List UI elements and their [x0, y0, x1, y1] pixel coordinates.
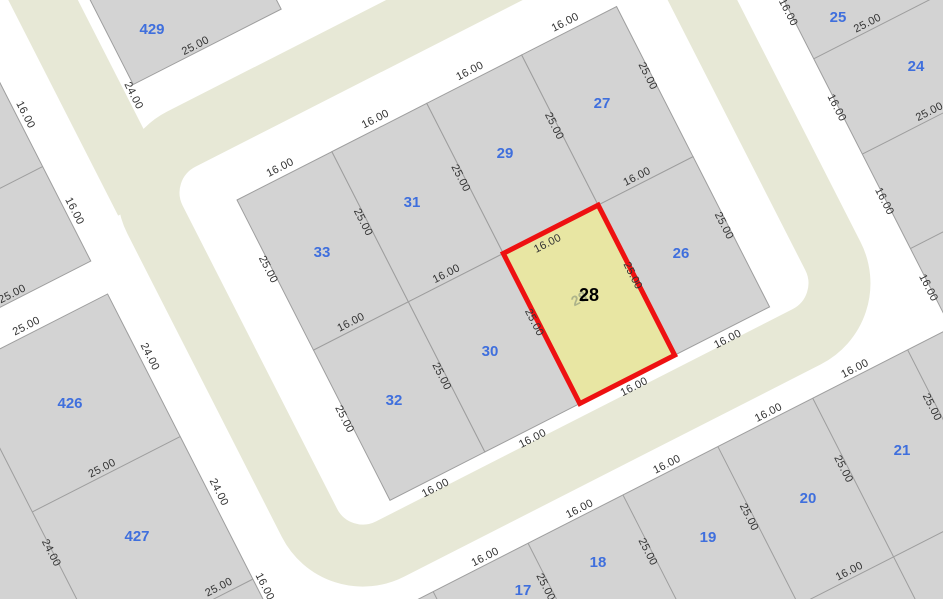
parcel-number-label: 24 [908, 58, 925, 75]
parcel-number-label: 21 [894, 442, 911, 459]
parcel-number-label: 429 [139, 21, 164, 38]
parcel-number-label: 33 [314, 244, 331, 261]
parcel-number-label: 20 [800, 490, 817, 507]
parcel-number-label: 30 [482, 343, 499, 360]
parcel-number-label: 27 [594, 95, 611, 112]
parcel-number-label: 31 [404, 194, 421, 211]
parcel-number-label: 427 [124, 528, 149, 545]
parcel-number-label: 32 [386, 392, 403, 409]
parcel-28-selected-number: 28 [579, 285, 599, 305]
parcel-number-label: 426 [57, 395, 82, 412]
parcel-number-label: 18 [590, 554, 607, 571]
parcel-number-label: 17 [515, 582, 532, 599]
parcel-number-label: 25 [830, 9, 847, 26]
map-canvas[interactable]: 16.0016.0016.0016.0016.0016.0016.0016.00… [0, 0, 943, 599]
map-viewport[interactable]: 16.0016.0016.0016.0016.0016.0016.0016.00… [0, 0, 943, 599]
parcel-number-label: 26 [673, 245, 690, 262]
parcel-number-label: 19 [700, 529, 717, 546]
parcel-number-label: 29 [497, 145, 514, 162]
